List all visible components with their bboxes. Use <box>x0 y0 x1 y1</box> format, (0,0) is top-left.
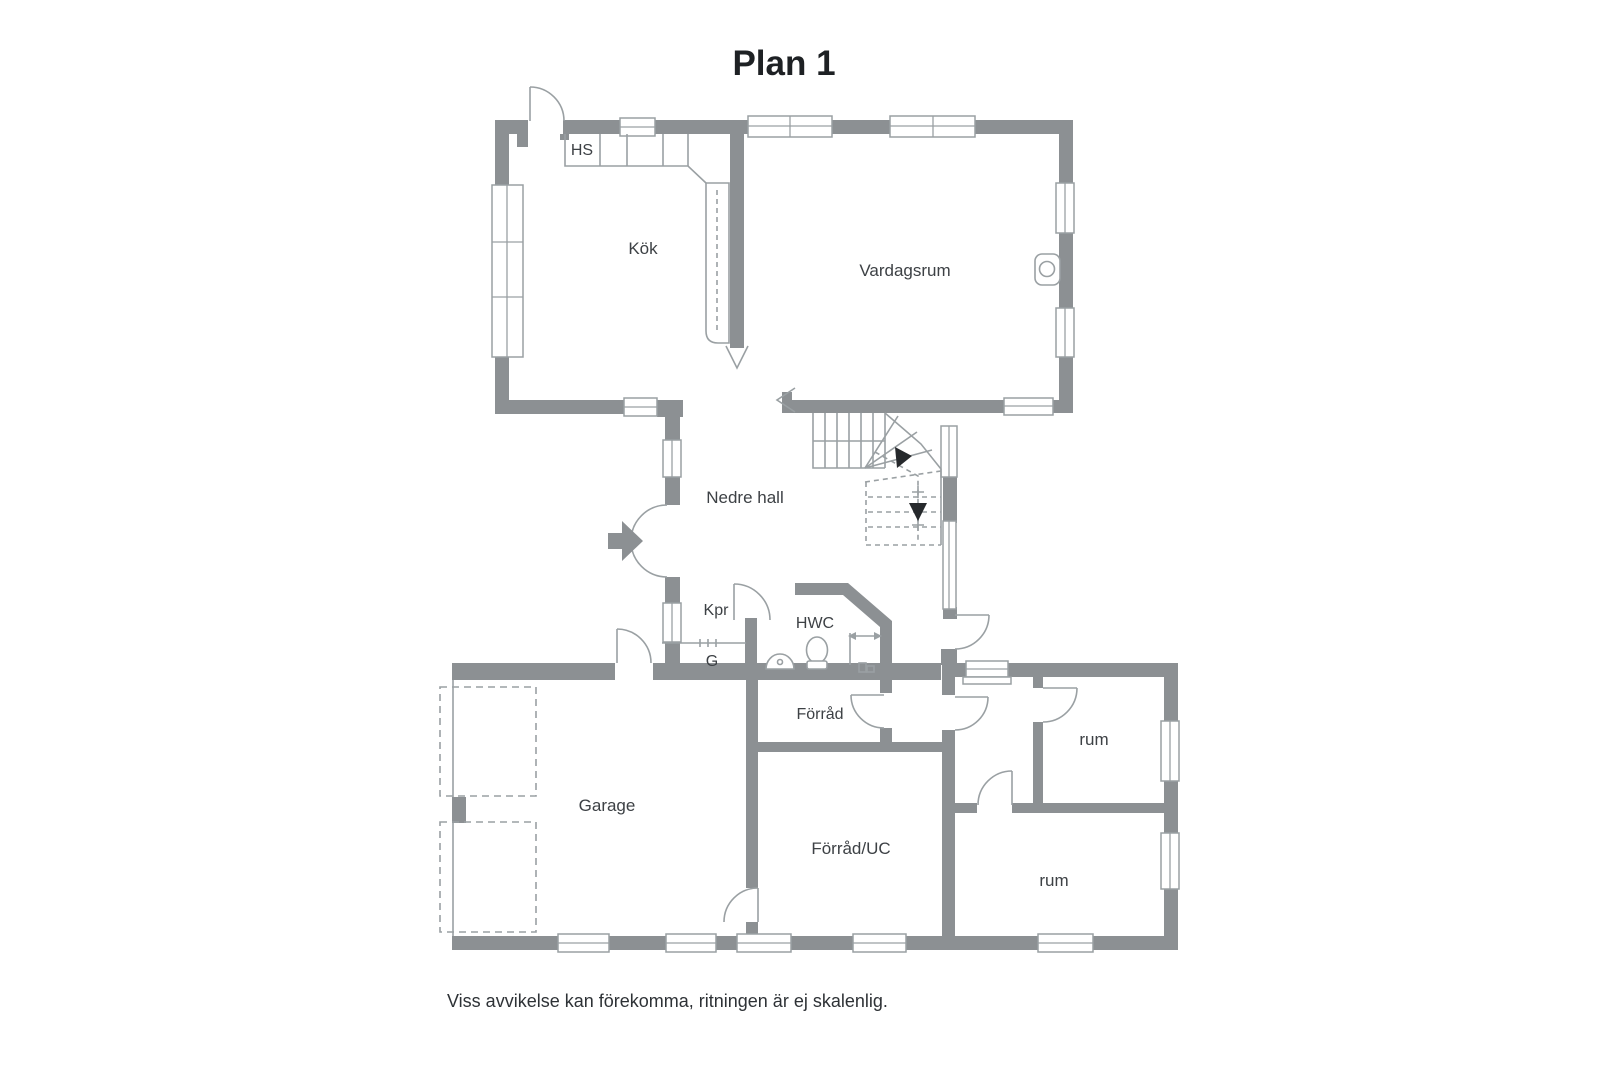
door-room-lower <box>978 771 1012 805</box>
window <box>737 934 791 952</box>
window <box>941 426 957 477</box>
staircase <box>813 413 941 545</box>
label-kitchen: Kök <box>628 239 658 258</box>
room-labels: HS Kök Vardagsrum Nedre hall Kpr HWC G F… <box>571 142 1109 890</box>
label-wc: HWC <box>796 615 834 632</box>
entrance-arrow-icon <box>608 521 643 561</box>
door-kitchen-entry <box>530 87 564 121</box>
door-garage-exterior <box>617 629 651 663</box>
window <box>1161 833 1179 889</box>
window <box>853 934 906 952</box>
label-storage: Förråd <box>796 705 843 723</box>
fireplace-icon <box>1035 254 1060 285</box>
door-corridor <box>955 697 988 730</box>
window <box>620 118 655 136</box>
sink-icon <box>766 654 794 669</box>
label-room-lower: rum <box>1039 871 1068 890</box>
window <box>666 934 716 952</box>
window <box>963 661 1011 684</box>
window <box>748 116 832 137</box>
stairs-down-arrow <box>895 447 912 468</box>
label-wardrobe: G <box>706 653 718 670</box>
disclaimer-text: Viss avvikelse kan förekomma, ritningen … <box>447 991 888 1012</box>
garage-door-upper <box>440 687 536 796</box>
window <box>1004 398 1053 415</box>
window <box>1056 183 1074 233</box>
walls <box>452 120 1178 950</box>
floorplan-page: Plan 1 <box>0 0 1620 1080</box>
door-garage-forraduc <box>724 888 758 922</box>
window <box>1038 934 1093 952</box>
toilet-icon <box>807 637 828 669</box>
window <box>943 521 956 609</box>
door-forrad <box>851 695 884 728</box>
label-cabinet: HS <box>571 142 593 159</box>
window <box>624 398 657 416</box>
window <box>1161 721 1179 781</box>
door-room-upper <box>1043 688 1077 722</box>
floorplan-drawing: HS Kök Vardagsrum Nedre hall Kpr HWC G F… <box>0 0 1620 1080</box>
label-coat-room: Kpr <box>704 602 730 619</box>
window <box>663 603 681 642</box>
label-room-upper: rum <box>1079 730 1108 749</box>
door-hall-passage <box>955 615 989 649</box>
window <box>663 440 681 477</box>
window <box>1056 308 1074 357</box>
garage-door-lower <box>440 822 536 932</box>
door-hwc <box>734 584 770 620</box>
label-storage-uc: Förråd/UC <box>811 839 890 858</box>
window <box>492 185 523 357</box>
windows <box>492 116 1179 952</box>
label-hall: Nedre hall <box>706 488 784 507</box>
label-garage: Garage <box>579 796 636 815</box>
label-living-room: Vardagsrum <box>859 261 950 280</box>
window <box>890 116 975 137</box>
window <box>558 934 609 952</box>
